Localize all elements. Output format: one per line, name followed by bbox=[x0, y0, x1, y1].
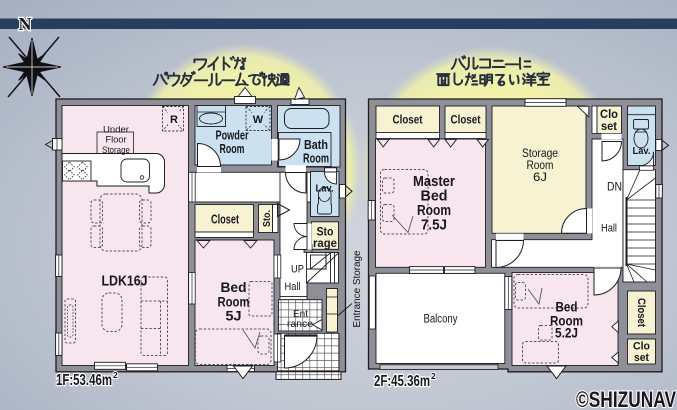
svg-text:Closet: Closet bbox=[635, 298, 647, 327]
svg-text:2F:45.36m: 2F:45.36m bbox=[374, 373, 430, 390]
svg-text:Room: Room bbox=[220, 142, 245, 156]
svg-text:Sto: Sto bbox=[317, 227, 334, 239]
svg-text:2: 2 bbox=[431, 371, 436, 381]
svg-text:2: 2 bbox=[113, 370, 118, 380]
svg-text:7.5J: 7.5J bbox=[421, 218, 447, 234]
svg-text:©SHIZUNAV: ©SHIZUNAV bbox=[576, 387, 676, 410]
svg-text:Bath: Bath bbox=[304, 138, 328, 152]
svg-text:R: R bbox=[170, 114, 178, 126]
svg-text:Storage: Storage bbox=[102, 144, 130, 155]
svg-text:Hall: Hall bbox=[285, 281, 301, 293]
svg-text:rage: rage bbox=[313, 238, 337, 250]
svg-text:DN: DN bbox=[607, 182, 622, 194]
svg-text:Storage: Storage bbox=[522, 148, 558, 160]
svg-text:N: N bbox=[19, 14, 32, 34]
svg-text:Lav.: Lav. bbox=[316, 183, 334, 195]
svg-text:Closet: Closet bbox=[211, 213, 240, 227]
svg-text:set: set bbox=[601, 121, 617, 133]
svg-text:W: W bbox=[253, 114, 264, 126]
svg-text:5.2J: 5.2J bbox=[555, 325, 578, 341]
svg-text:Clo: Clo bbox=[633, 341, 650, 353]
svg-text:1F:53.46m: 1F:53.46m bbox=[56, 372, 112, 389]
svg-text:rance: rance bbox=[287, 318, 313, 330]
svg-text:Floor: Floor bbox=[106, 134, 127, 145]
svg-text:Entrance Storage: Entrance Storage bbox=[352, 250, 363, 327]
svg-text:5J: 5J bbox=[226, 308, 242, 324]
svg-text:Powder: Powder bbox=[216, 129, 249, 143]
svg-text:Clo: Clo bbox=[600, 109, 618, 121]
svg-text:LDK16J: LDK16J bbox=[102, 274, 148, 290]
svg-text:Closet: Closet bbox=[451, 115, 481, 127]
svg-text:Hall: Hall bbox=[601, 223, 617, 235]
svg-text:6J: 6J bbox=[533, 172, 547, 184]
svg-text:UP: UP bbox=[291, 264, 304, 276]
svg-text:Closet: Closet bbox=[393, 115, 423, 127]
svg-text:Room: Room bbox=[527, 160, 554, 172]
svg-text:Room: Room bbox=[303, 152, 329, 166]
svg-text:Lav.: Lav. bbox=[633, 145, 651, 157]
svg-text:Sto.: Sto. bbox=[262, 210, 273, 227]
svg-text:set: set bbox=[634, 352, 649, 364]
svg-text:Balcony: Balcony bbox=[424, 314, 458, 326]
